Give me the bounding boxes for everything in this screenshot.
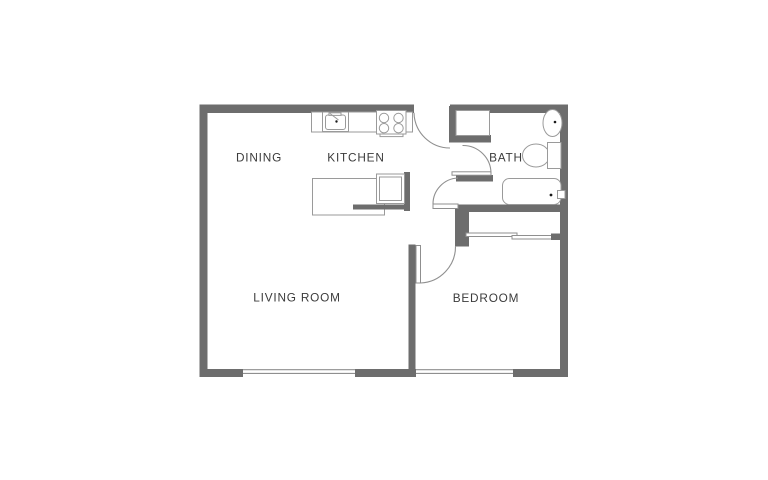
entry-closet: [456, 111, 490, 136]
bedroom-door-swing-arc: [421, 246, 456, 283]
exterior-walls: [200, 105, 569, 378]
hall-door-swing-arc: [433, 178, 458, 204]
bedroom-area: [416, 233, 560, 283]
stove-front-lip: [380, 134, 403, 137]
bath-sink-drain-dot: [554, 121, 557, 124]
wall-left: [200, 105, 208, 378]
hall-pier-wall: [455, 205, 469, 247]
bedroom-closet-slider-right: [512, 236, 556, 240]
bedroom-closet-slider-jamb: [551, 234, 560, 241]
room-label-dining: DINING: [236, 151, 282, 165]
entry-closet-bottom-wall: [449, 135, 491, 143]
entry-door-swing-arc: [414, 113, 450, 148]
bath-door-swing-arc: [463, 145, 492, 173]
kitchen-sink-drain-dot: [335, 120, 337, 122]
bath-bedroom-dividing-wall: [457, 205, 568, 213]
wall-bottom-seg-3: [513, 369, 568, 377]
room-label-living-room: LIVING ROOM: [253, 291, 340, 305]
room-label-kitchen: KITCHEN: [327, 151, 384, 165]
kitchen-nook-wall-overlay: [353, 205, 410, 210]
bath-sink: [543, 110, 562, 137]
room-label-bath: BATH: [489, 151, 523, 165]
bath-door-wall: [456, 175, 493, 182]
toilet-bowl: [523, 144, 550, 167]
hall-door-leaf: [433, 204, 458, 209]
floor-plan-canvas: DINING KITCHEN BATH LIVING ROOM BEDROOM: [0, 0, 768, 480]
bath-door-threshold: [452, 172, 491, 175]
bedroom-door-leaf: [416, 246, 421, 284]
bedroom-closet-slider-left: [466, 233, 517, 237]
kitchen-island-counter: [313, 179, 385, 216]
bathtub-faucet-icon: [558, 191, 566, 199]
floor-plan-drawing: DINING KITCHEN BATH LIVING ROOM BEDROOM: [0, 0, 768, 480]
room-label-bedroom: BEDROOM: [453, 291, 520, 305]
bathtub-drain-dot: [550, 194, 553, 197]
toilet-tank: [548, 143, 562, 169]
refrigerator: [377, 174, 405, 204]
wall-bottom-seg-2: [355, 369, 416, 377]
bathtub: [503, 179, 562, 205]
living-bedroom-divider-wall: [409, 245, 416, 378]
wall-bottom-seg-1: [200, 369, 244, 377]
